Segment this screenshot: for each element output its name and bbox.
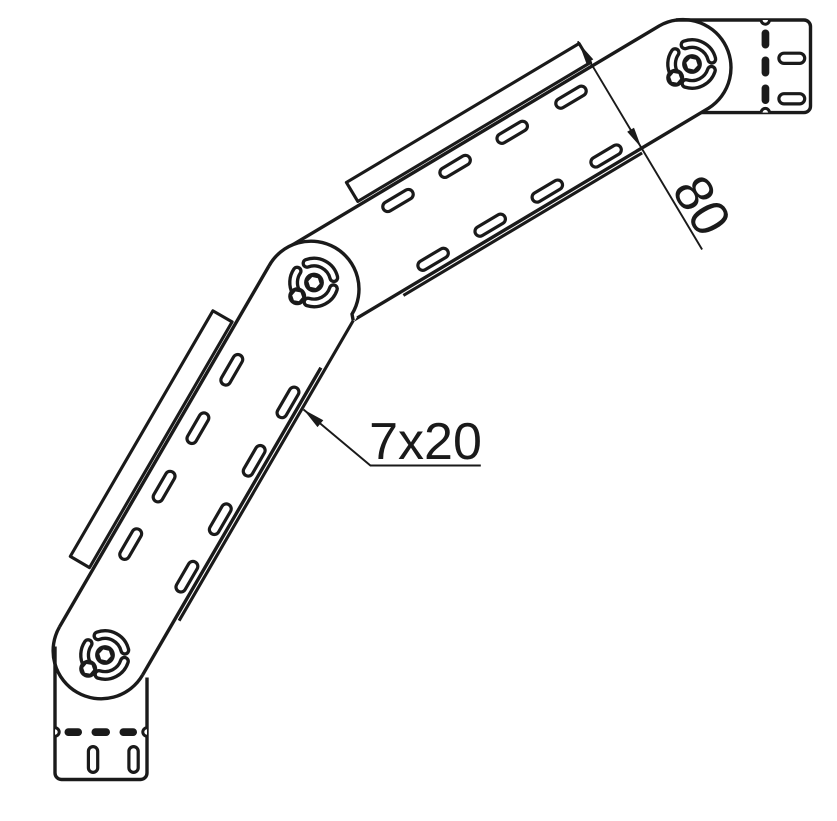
svg-text:7x20: 7x20 [369, 413, 482, 471]
